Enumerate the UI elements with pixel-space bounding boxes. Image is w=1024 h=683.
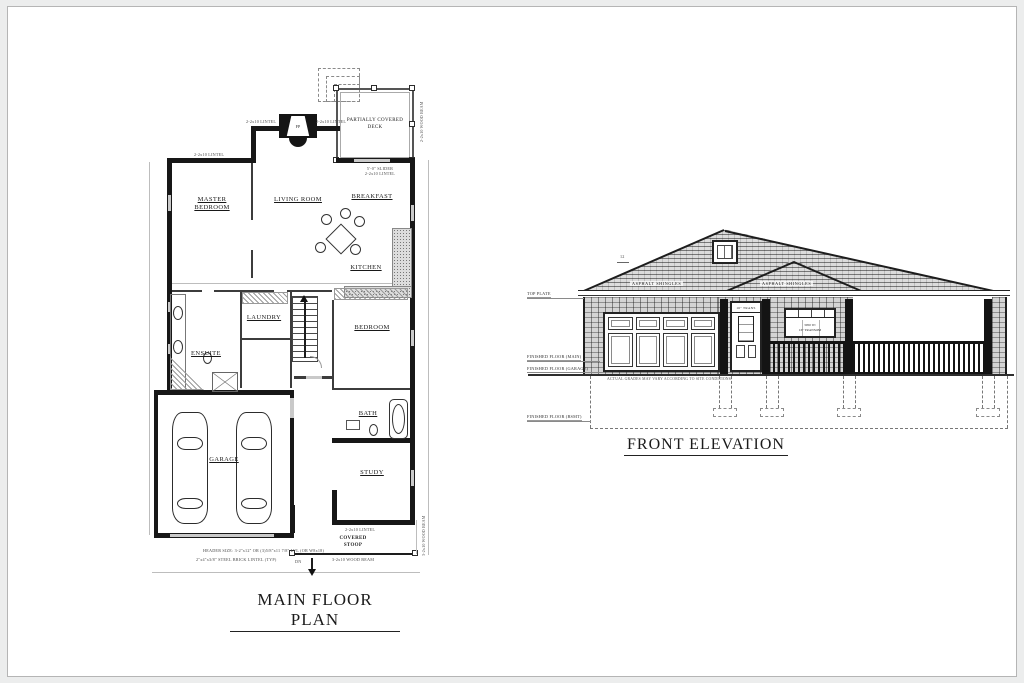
pier-dashed xyxy=(855,376,856,408)
garage-door-opening xyxy=(170,534,274,537)
porch-post xyxy=(720,299,728,374)
pier-dashed xyxy=(719,376,720,408)
window-opening xyxy=(168,195,171,211)
level-line xyxy=(527,421,591,422)
dimension-line-left xyxy=(149,162,150,535)
kitchen-counter xyxy=(392,228,412,290)
pier-dashed xyxy=(843,376,844,408)
slider-window-opening xyxy=(354,159,390,162)
dimension-line-interior xyxy=(172,283,410,284)
wall-study-bottom xyxy=(332,520,415,525)
porch-window: 3050 W/ 16" TRANSOM xyxy=(784,308,836,338)
wall-living-top-right xyxy=(313,126,340,131)
wall-corner-right xyxy=(1005,297,1007,374)
dining-chair xyxy=(315,242,326,253)
porch-post xyxy=(845,299,853,374)
deck-post xyxy=(371,85,377,91)
wall-garage-left xyxy=(154,392,158,538)
room-label-kitchen: KITCHEN xyxy=(343,264,389,272)
stoop-beam-note-vertical: 3-2x10 WOOD BEAM xyxy=(421,516,426,556)
down-arrow xyxy=(308,569,316,576)
wall-step xyxy=(251,126,256,163)
foundation-dashed-bottom xyxy=(590,428,1008,429)
dining-chair xyxy=(354,216,365,227)
ensuite-sink xyxy=(173,340,183,354)
garage-door xyxy=(603,312,720,372)
pier-dashed xyxy=(766,376,767,408)
stair-arrow-stem xyxy=(304,302,306,358)
level-line xyxy=(527,361,600,362)
wall-laundry-bottom xyxy=(240,338,292,340)
title-main-floor-plan: MAIN FLOOR PLAN xyxy=(230,590,400,632)
lintel-note: 2-2x10 LINTEL xyxy=(316,119,346,124)
entry-door-opening xyxy=(306,376,322,379)
wall-corridor xyxy=(172,290,202,292)
garage-door-panels xyxy=(608,333,715,367)
level-line xyxy=(527,298,584,299)
bath-toilet xyxy=(369,424,378,436)
wall-stoop-left xyxy=(290,505,295,533)
window-opening xyxy=(411,205,414,221)
wall-bedroom-left xyxy=(332,300,334,388)
steel-lintel-note: 2"x4"x3/8" STEEL BRICK LINTEL (TYP) xyxy=(196,557,276,562)
dining-chair xyxy=(340,208,351,219)
level-label-ff-bsmt: FINISHED FLOOR (BSMT) xyxy=(527,414,582,421)
door-panels xyxy=(736,345,756,358)
pier-footing xyxy=(713,408,737,417)
room-label-deck: PARTIALLY COVERED DECK xyxy=(344,118,406,131)
room-label-living-room: LIVING ROOM xyxy=(268,196,328,204)
room-label-ensuite: ENSUITE xyxy=(186,350,226,358)
porch-railing xyxy=(768,341,992,374)
room-label-garage: GARAGE xyxy=(200,456,248,464)
stoop-edge-line xyxy=(416,520,417,554)
grade-line xyxy=(528,374,1014,376)
slider-note-line2: 2-2x10 LINTEL xyxy=(365,171,395,176)
room-label-master-bedroom: MASTER BEDROOM xyxy=(190,196,234,212)
title-front-elevation: FRONT ELEVATION xyxy=(621,436,791,456)
wall-corridor xyxy=(287,290,332,292)
bath-vanity xyxy=(346,420,360,430)
wall-master-living xyxy=(251,163,253,220)
fireplace-insert: FP xyxy=(284,116,312,136)
bedroom-closet xyxy=(334,288,408,300)
ensuite-sink xyxy=(173,306,183,320)
deck-post xyxy=(409,85,415,91)
door-glass xyxy=(738,316,754,342)
porch-post xyxy=(984,299,992,374)
window-opening xyxy=(411,330,414,346)
front-door: 16" TRANS xyxy=(730,301,762,372)
level-label-top-plate: TOP PLATE xyxy=(527,291,551,298)
stone-veneer-right xyxy=(992,297,1006,374)
roof-pitch-mark xyxy=(617,262,629,263)
pier-footing xyxy=(760,408,784,417)
foundation-dashed-right xyxy=(1007,376,1008,428)
stoop-beam-note: 3-2x10 WOOD BEAM xyxy=(332,557,374,562)
room-label-stoop: COVERED STOOP xyxy=(332,536,374,549)
fireplace: FP xyxy=(279,114,317,138)
wall-living-top-left xyxy=(251,126,281,131)
header-size-note: HEADER SIZE: 3-2"x12" OR (3)5/8"x11 7/8"… xyxy=(203,548,324,553)
lintel-note: 2-2x10 LINTEL xyxy=(246,119,276,124)
wall-bath-top xyxy=(332,388,410,390)
deck-beam-note: 2-2x10 WOOD BEAM xyxy=(419,102,424,142)
wall-ensuite-laundry xyxy=(240,292,242,388)
stoop-beam-line xyxy=(292,553,418,555)
dining-chair xyxy=(321,214,332,225)
level-line xyxy=(527,372,602,373)
door-transom-label: 16" TRANS xyxy=(732,303,760,313)
stoop-lintel-note: 2-2x10 LINTEL xyxy=(345,527,375,532)
grade-note: ACTUAL GRADES MAY VARY ACCORDING TO SITE… xyxy=(607,377,732,381)
fireplace-label: FP xyxy=(296,124,300,129)
laundry-appliances xyxy=(242,292,288,304)
wall-master-top xyxy=(167,158,255,163)
fascia-band xyxy=(578,290,1010,296)
window-label: 3050 W/ 16" TRANSOM xyxy=(786,320,834,336)
wall-master-living xyxy=(251,250,253,278)
pier-dashed xyxy=(982,376,983,408)
shingles-label: ASPHALT SHINGLES xyxy=(630,281,683,286)
pier-footing xyxy=(976,408,1000,417)
shower-base xyxy=(212,372,238,392)
pier-dashed xyxy=(731,376,732,408)
room-label-laundry: LAUNDRY xyxy=(240,314,288,322)
car xyxy=(172,412,208,524)
garage-mandoor-opening xyxy=(290,398,294,418)
window-opening xyxy=(411,470,414,486)
garage-door-windows xyxy=(608,317,715,330)
level-label-ff-main: FINISHED FLOOR (MAIN) xyxy=(527,354,581,361)
title-main-floor-plan-text: MAIN FLOOR PLAN xyxy=(230,590,400,632)
window-transom xyxy=(786,310,834,318)
slider-note: 5'-0" SLIDER 2-2x10 LINTEL xyxy=(352,166,408,177)
wall-corner-left xyxy=(583,297,585,374)
deck-post xyxy=(409,121,415,127)
shingles-label: ASPHALT SHINGLES xyxy=(760,281,813,286)
room-label-breakfast: BREAKFAST xyxy=(342,193,402,201)
title-front-elevation-text: FRONT ELEVATION xyxy=(624,436,788,456)
car xyxy=(236,412,272,524)
pier-dashed xyxy=(994,376,995,408)
deck-post xyxy=(333,85,339,91)
slider-note-line1: 5'-0" SLIDER xyxy=(367,166,393,171)
room-label-bedroom: BEDROOM xyxy=(348,324,396,332)
dormer-window xyxy=(712,240,738,264)
roof-pitch-label: 12 xyxy=(620,254,625,259)
window-label-line2: 16" TRANSOM xyxy=(799,328,821,333)
room-label-bath: BATH xyxy=(352,410,384,418)
dimension-line-bottom xyxy=(152,572,420,573)
bathtub-basin xyxy=(392,404,405,434)
pier-dashed xyxy=(778,376,779,408)
lintel-note: 2-2x10 LINTEL xyxy=(194,152,224,157)
down-label: DN xyxy=(295,559,301,564)
pier-footing xyxy=(837,408,861,417)
stair-arrow-up xyxy=(300,295,308,302)
room-label-study: STUDY xyxy=(348,469,396,477)
porch-post xyxy=(762,299,770,374)
stoop-post xyxy=(412,550,418,556)
dimension-line-right xyxy=(428,160,429,555)
dining-chair xyxy=(350,244,361,255)
